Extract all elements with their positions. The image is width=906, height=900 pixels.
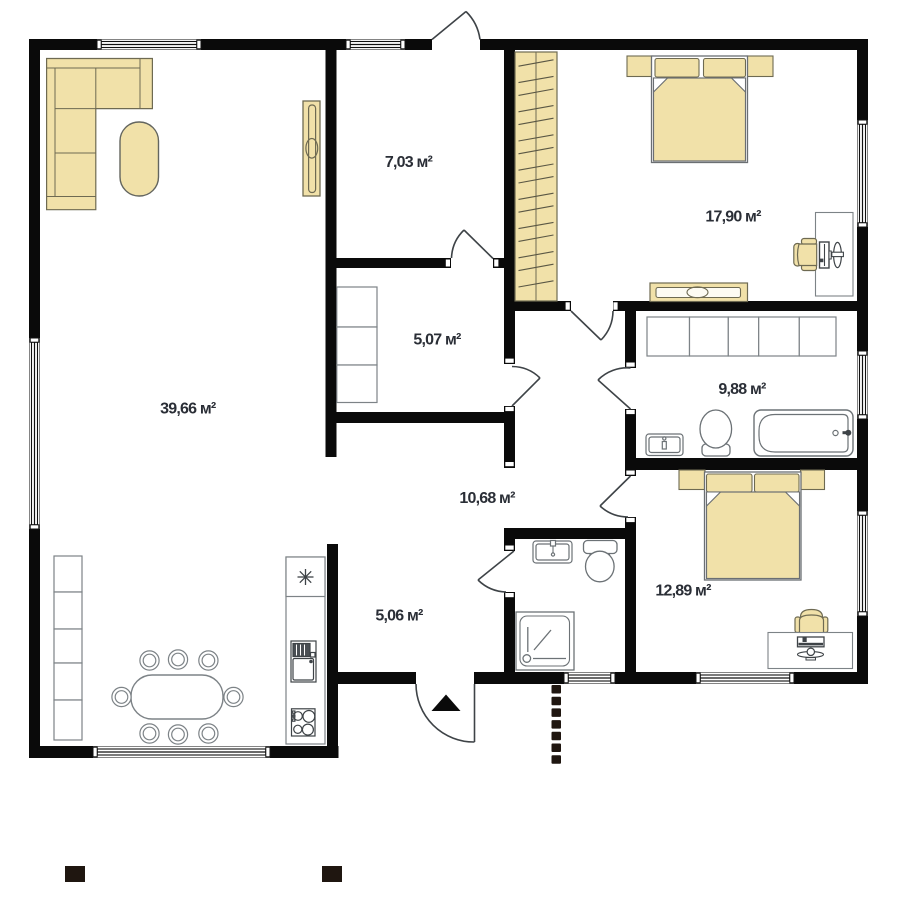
svg-text:39,66 м²: 39,66 м²: [160, 401, 216, 418]
svg-text:9,88 м²: 9,88 м²: [718, 381, 766, 398]
svg-text:12,89 м²: 12,89 м²: [655, 583, 711, 600]
svg-text:5,07 м²: 5,07 м²: [413, 332, 461, 349]
svg-text:17,90 м²: 17,90 м²: [705, 209, 761, 226]
svg-text:5,06 м²: 5,06 м²: [375, 608, 423, 625]
svg-text:10,68 м²: 10,68 м²: [459, 490, 515, 507]
svg-text:7,03 м²: 7,03 м²: [385, 154, 433, 171]
